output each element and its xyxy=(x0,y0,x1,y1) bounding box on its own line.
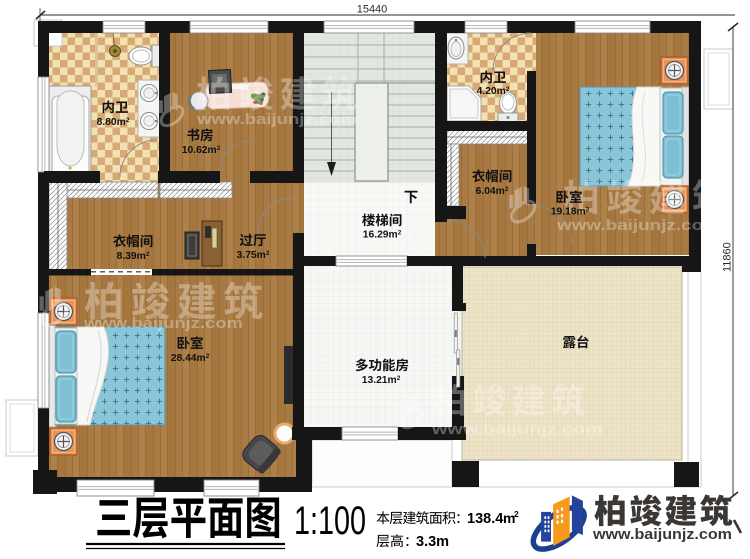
svg-text:8.39m2: 8.39m2 xyxy=(117,251,150,262)
svg-text:www.baijunjz.com: www.baijunjz.com xyxy=(431,421,603,438)
svg-text:16.29m2: 16.29m2 xyxy=(363,229,402,240)
svg-text:3.75m2: 3.75m2 xyxy=(237,250,270,261)
svg-text:8.80m2: 8.80m2 xyxy=(97,117,130,128)
svg-text:www.baijunjz.com: www.baijunjz.com xyxy=(592,526,732,543)
svg-text:19.18m2: 19.18m2 xyxy=(551,206,590,217)
svg-text:6.04m2: 6.04m2 xyxy=(476,186,509,197)
svg-text:15440: 15440 xyxy=(357,4,388,16)
svg-text:www.baijunjz.com: www.baijunjz.com xyxy=(83,315,243,332)
svg-text:11860: 11860 xyxy=(722,242,734,272)
svg-text:4.20m2: 4.20m2 xyxy=(477,86,510,97)
svg-text:www.baijunjz.com: www.baijunjz.com xyxy=(196,111,357,128)
svg-text:3.3m: 3.3m xyxy=(416,534,449,550)
svg-text:2: 2 xyxy=(514,509,519,519)
svg-text:13.21m2: 13.21m2 xyxy=(362,375,401,386)
svg-text:1:100: 1:100 xyxy=(294,498,366,543)
svg-text:28.44m2: 28.44m2 xyxy=(171,353,210,364)
svg-text:138.4: 138.4 xyxy=(467,511,503,527)
svg-text:www.baijunjz.com: www.baijunjz.com xyxy=(556,217,720,234)
svg-text:10.62m2: 10.62m2 xyxy=(182,145,221,156)
